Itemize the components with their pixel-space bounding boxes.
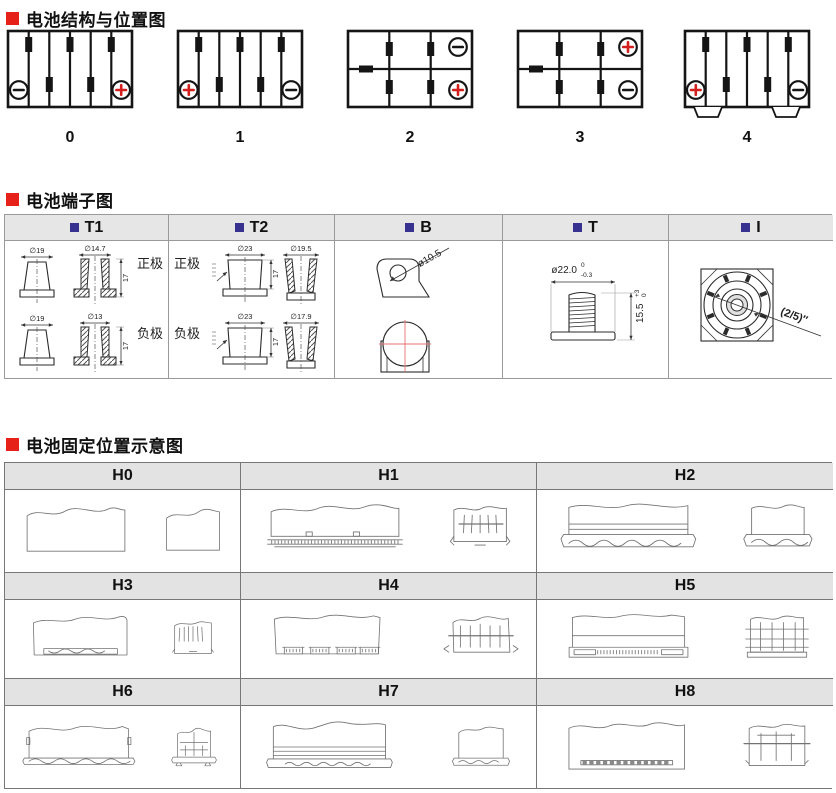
svg-text:∅23: ∅23: [238, 312, 253, 321]
h3-side-view-sketch: [20, 607, 138, 671]
svg-text:15.5: 15.5: [635, 303, 646, 323]
mounting-cell-h3: [5, 600, 241, 679]
mounting-cell-h1: [241, 490, 537, 573]
h1-end-view-sketch: [438, 496, 524, 566]
i-terminal-drawing: (2/5)″: [673, 251, 829, 365]
navy-square-icon: [235, 223, 244, 232]
section-terminals-title: 电池端子图: [6, 187, 114, 212]
mounting-cell-h4: [241, 600, 537, 679]
b-terminal-drawing: ø10.5: [343, 243, 493, 376]
mounting-header-h0: H0: [5, 463, 241, 490]
mounting-header-h7: H7: [241, 679, 537, 706]
t1-positive-section-drawing: ∅14.7 17: [67, 243, 133, 307]
header-label: I: [756, 219, 760, 237]
svg-text:(2/5)″: (2/5)″: [779, 306, 810, 327]
t1-negative-post-drawing: ∅19: [11, 313, 63, 375]
h5-end-view-sketch: [734, 606, 820, 672]
battery-layout-4-drawing: [682, 28, 812, 120]
t2-positive-post-drawing: ∅23 17: [201, 243, 281, 309]
mounting-header-h4: H4: [241, 573, 537, 600]
figure-number-label: 4: [682, 129, 812, 147]
svg-text:0: 0: [641, 293, 648, 297]
terminal-cell-b: ø10.5: [335, 241, 503, 378]
header-label: B: [420, 219, 432, 237]
mounting-cell-h6: [5, 706, 241, 788]
structure-figure-3: 3: [515, 28, 645, 147]
navy-square-icon: [405, 223, 414, 232]
h1-side-view-sketch: [254, 496, 416, 566]
navy-square-icon: [70, 223, 79, 232]
h3-end-view-sketch: [160, 607, 226, 671]
navy-square-icon: [741, 223, 750, 232]
svg-text:0: 0: [581, 262, 585, 269]
terminal-cell-t: ø22.0 0 -0.3 15.5 +3 0: [503, 241, 669, 378]
mounting-header-h3: H3: [5, 573, 241, 600]
terminal-header-t1: T1: [5, 215, 169, 241]
mounting-grid: H0 H1 H2: [4, 462, 832, 789]
section-mounting-title: 电池固定位置示意图: [6, 432, 184, 457]
red-square-icon: [6, 12, 19, 25]
h0-side-view-sketch: [17, 497, 135, 565]
h7-side-view-sketch: [251, 713, 413, 781]
header-label: T: [588, 219, 598, 237]
figure-number-label: 0: [5, 129, 135, 147]
figure-number-label: 2: [345, 129, 475, 147]
h7-end-view-sketch: [435, 713, 527, 781]
h6-end-view-sketch: [160, 714, 228, 780]
battery-layout-0-drawing: [5, 28, 135, 120]
mounting-cell-h8: [537, 706, 833, 788]
svg-text:∅14.7: ∅14.7: [84, 244, 105, 253]
t2-positive-section-drawing: ∅19.5: [271, 243, 333, 309]
battery-spec-sheet: { "colors": { "accent_red": "#e62119", "…: [0, 0, 836, 793]
h4-end-view-sketch: [436, 606, 526, 672]
svg-text:ø22.0: ø22.0: [551, 265, 577, 276]
h8-side-view-sketch: [550, 713, 712, 781]
svg-text:+3: +3: [634, 289, 641, 297]
h4-side-view-sketch: [252, 606, 414, 672]
terminal-header-i: I: [669, 215, 833, 241]
h8-end-view-sketch: [734, 713, 820, 781]
mounting-header-h8: H8: [537, 679, 833, 706]
h6-side-view-sketch: [18, 714, 138, 780]
terminal-cell-t2: 正极 ∅23 17 ∅19.5 负极 ∅23: [169, 241, 335, 378]
battery-layout-2-drawing: [345, 28, 475, 120]
svg-text:∅19: ∅19: [30, 246, 45, 255]
terminal-table: T1 T2 B T I 正极 ∅19 ∅14.7 17 负极 ∅19: [4, 214, 832, 379]
terminal-cell-t1: 正极 ∅19 ∅14.7 17 负极 ∅19: [5, 241, 169, 378]
navy-square-icon: [573, 223, 582, 232]
terminal-header-t: T: [503, 215, 669, 241]
h2-end-view-sketch: [734, 496, 820, 566]
structure-figure-1: 1: [175, 28, 305, 147]
t1-positive-post-drawing: ∅19: [11, 245, 63, 307]
t2-negative-section-drawing: ∅17.9: [271, 311, 333, 377]
h0-end-view-sketch: [157, 497, 229, 565]
mounting-header-h1: H1: [241, 463, 537, 490]
h2-side-view-sketch: [550, 496, 712, 566]
t-terminal-drawing: ø22.0 0 -0.3 15.5 +3 0: [511, 249, 661, 369]
structure-figures-row: 0 1 2: [0, 28, 836, 178]
svg-text:ø10.5: ø10.5: [416, 248, 444, 270]
terminal-cell-i: (2/5)″: [669, 241, 833, 378]
terminal-header-t2: T2: [169, 215, 335, 241]
svg-text:∅19.5: ∅19.5: [290, 244, 311, 253]
mounting-header-h6: H6: [5, 679, 241, 706]
svg-text:∅17.9: ∅17.9: [290, 312, 311, 321]
red-square-icon: [6, 438, 19, 451]
header-label: T2: [250, 219, 269, 237]
svg-text:∅23: ∅23: [238, 244, 253, 253]
header-label: T1: [85, 219, 104, 237]
structure-figure-2: 2: [345, 28, 475, 147]
figure-number-label: 1: [175, 129, 305, 147]
svg-text:17: 17: [121, 342, 130, 350]
section-title-text: 电池端子图: [26, 187, 114, 212]
battery-layout-1-drawing: [175, 28, 305, 120]
battery-layout-3-drawing: [515, 28, 645, 120]
mounting-cell-h0: [5, 490, 241, 573]
t1-positive-label: 正极: [137, 253, 163, 272]
t2-positive-label: 正极: [174, 253, 200, 272]
h5-side-view-sketch: [550, 606, 712, 672]
mounting-cell-h5: [537, 600, 833, 679]
structure-figure-4: 4: [682, 28, 812, 147]
svg-text:17: 17: [121, 274, 130, 282]
t1-negative-section-drawing: ∅13 17: [67, 311, 133, 375]
svg-text:∅13: ∅13: [88, 312, 103, 321]
structure-figure-0: 0: [5, 28, 135, 147]
red-square-icon: [6, 193, 19, 206]
mounting-header-h5: H5: [537, 573, 833, 600]
figure-number-label: 3: [515, 129, 645, 147]
mounting-cell-h7: [241, 706, 537, 788]
mounting-header-h2: H2: [537, 463, 833, 490]
t1-negative-label: 负极: [137, 323, 163, 342]
svg-text:∅19: ∅19: [30, 314, 45, 323]
terminal-header-b: B: [335, 215, 503, 241]
t2-negative-label: 负极: [174, 323, 200, 342]
section-title-text: 电池固定位置示意图: [26, 432, 184, 457]
t2-negative-post-drawing: ∅23 17: [201, 311, 281, 377]
mounting-cell-h2: [537, 490, 833, 573]
svg-text:-0.3: -0.3: [581, 272, 593, 279]
